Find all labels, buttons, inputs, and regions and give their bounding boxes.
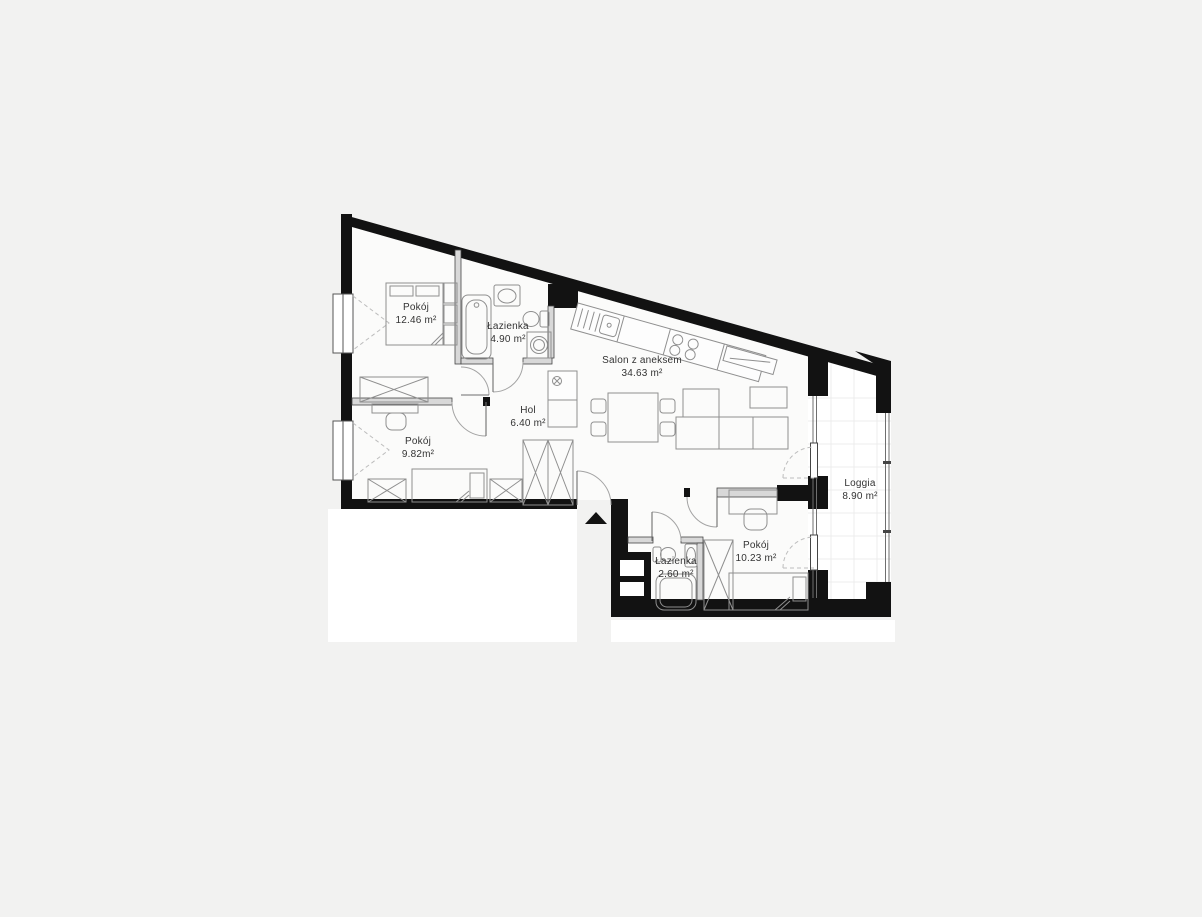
left-wall-middle <box>341 353 352 421</box>
balcony-door-room3 <box>811 535 818 570</box>
mask-bottom-left <box>328 509 577 642</box>
loggia-pillar-mid <box>808 476 828 509</box>
floor-plan: Pokój12.46 m²Łazienka4.90 m²Salon z anek… <box>0 0 1202 917</box>
wall-bath2-north-right <box>681 537 703 543</box>
loggia-pillar-bottom <box>808 570 828 617</box>
left-wall-upper <box>341 214 352 294</box>
wall-bath2-room3 <box>697 543 703 600</box>
bottom-wall-lower-section <box>611 599 891 617</box>
installation-shaft <box>611 552 651 600</box>
wall-bath1-south-right <box>523 358 552 364</box>
mask-bottom-right <box>611 620 895 642</box>
wall-room3-north <box>717 488 777 497</box>
balcony-door-salon <box>811 443 818 478</box>
entrance-side-wall <box>611 499 628 556</box>
entrance-marker <box>585 512 607 524</box>
wall-bath2-north-left <box>628 537 653 543</box>
loggia-corner-bottom-right <box>866 582 891 617</box>
wall-cap-room3 <box>684 488 690 497</box>
wall-room1-bath1 <box>455 250 461 364</box>
loggia-pillar-top <box>808 352 828 396</box>
bottom-wall-upper-section <box>341 499 577 509</box>
bathroom1-pillar <box>548 284 578 308</box>
